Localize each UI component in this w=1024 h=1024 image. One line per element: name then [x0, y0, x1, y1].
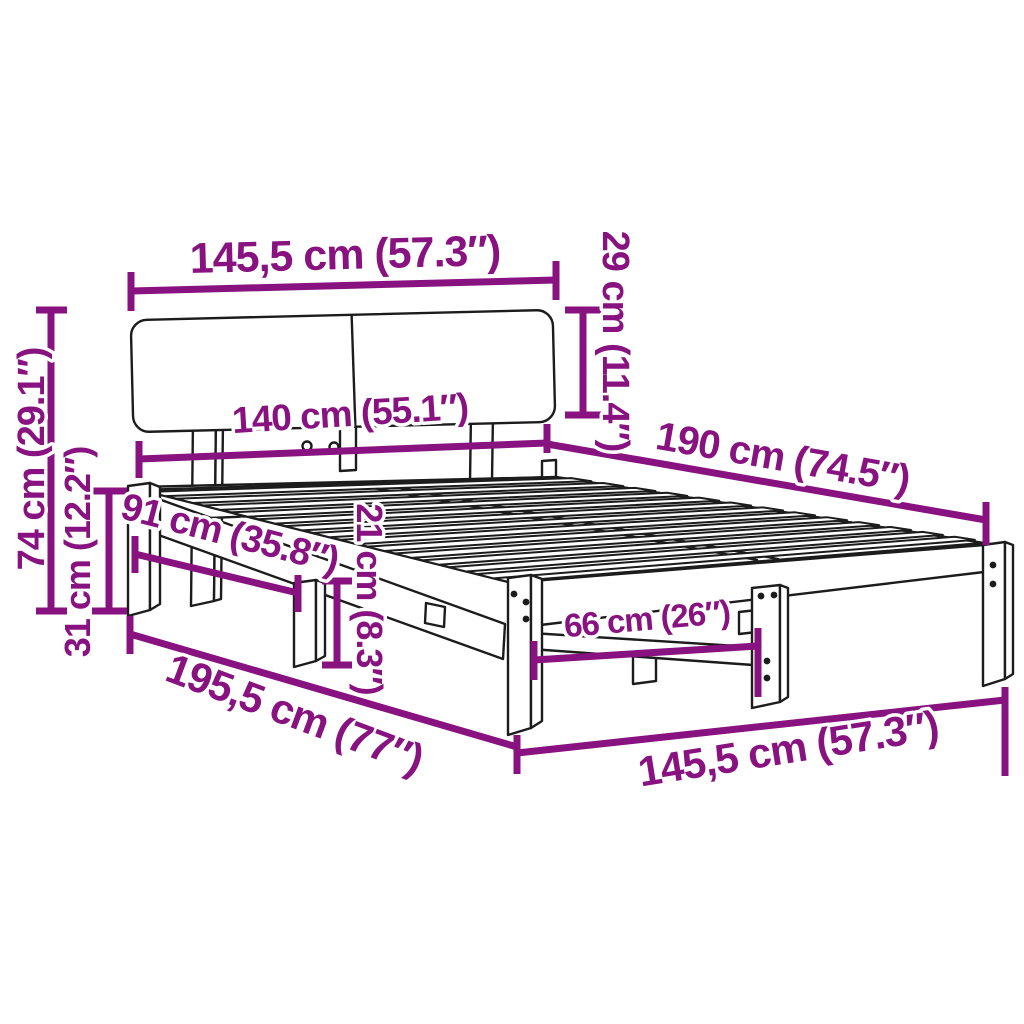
screw-icon	[990, 562, 997, 569]
leg-foot-center-side	[780, 585, 788, 702]
screw-icon	[523, 616, 530, 623]
screw-icon	[764, 658, 771, 665]
screw-icon	[758, 593, 765, 600]
rail-bracket	[425, 603, 445, 627]
screw-icon	[771, 592, 778, 599]
screw-icon	[523, 599, 530, 606]
diagram-canvas: 145,5 cm (57.3″) 140 cm (55.1″) 190 cm (…	[0, 0, 1024, 1024]
bed-frame-dimension-diagram: 145,5 cm (57.3″) 140 cm (55.1″) 190 cm (…	[0, 0, 1024, 1024]
headboard-height-label: 29 cm (11.4″)	[594, 231, 636, 452]
base-height-label: 31 cm (12.2″)	[57, 447, 98, 657]
screw-icon	[511, 591, 518, 598]
headboard-width-label: 145,5 cm (57.3″)	[189, 227, 501, 283]
screw-icon	[990, 581, 997, 588]
leg-foot-far-side	[1005, 542, 1013, 679]
total-height-label: 74 cm (29.1″)	[11, 348, 53, 571]
leg-mid-near-side	[316, 580, 325, 661]
screw-icon	[764, 675, 771, 682]
inner-length-label: 190 cm (74.5″)	[653, 414, 913, 502]
total-width-label: 145,5 cm (57.3″)	[635, 702, 942, 796]
rail-height-label: 21 cm (8.3″)	[349, 503, 390, 694]
